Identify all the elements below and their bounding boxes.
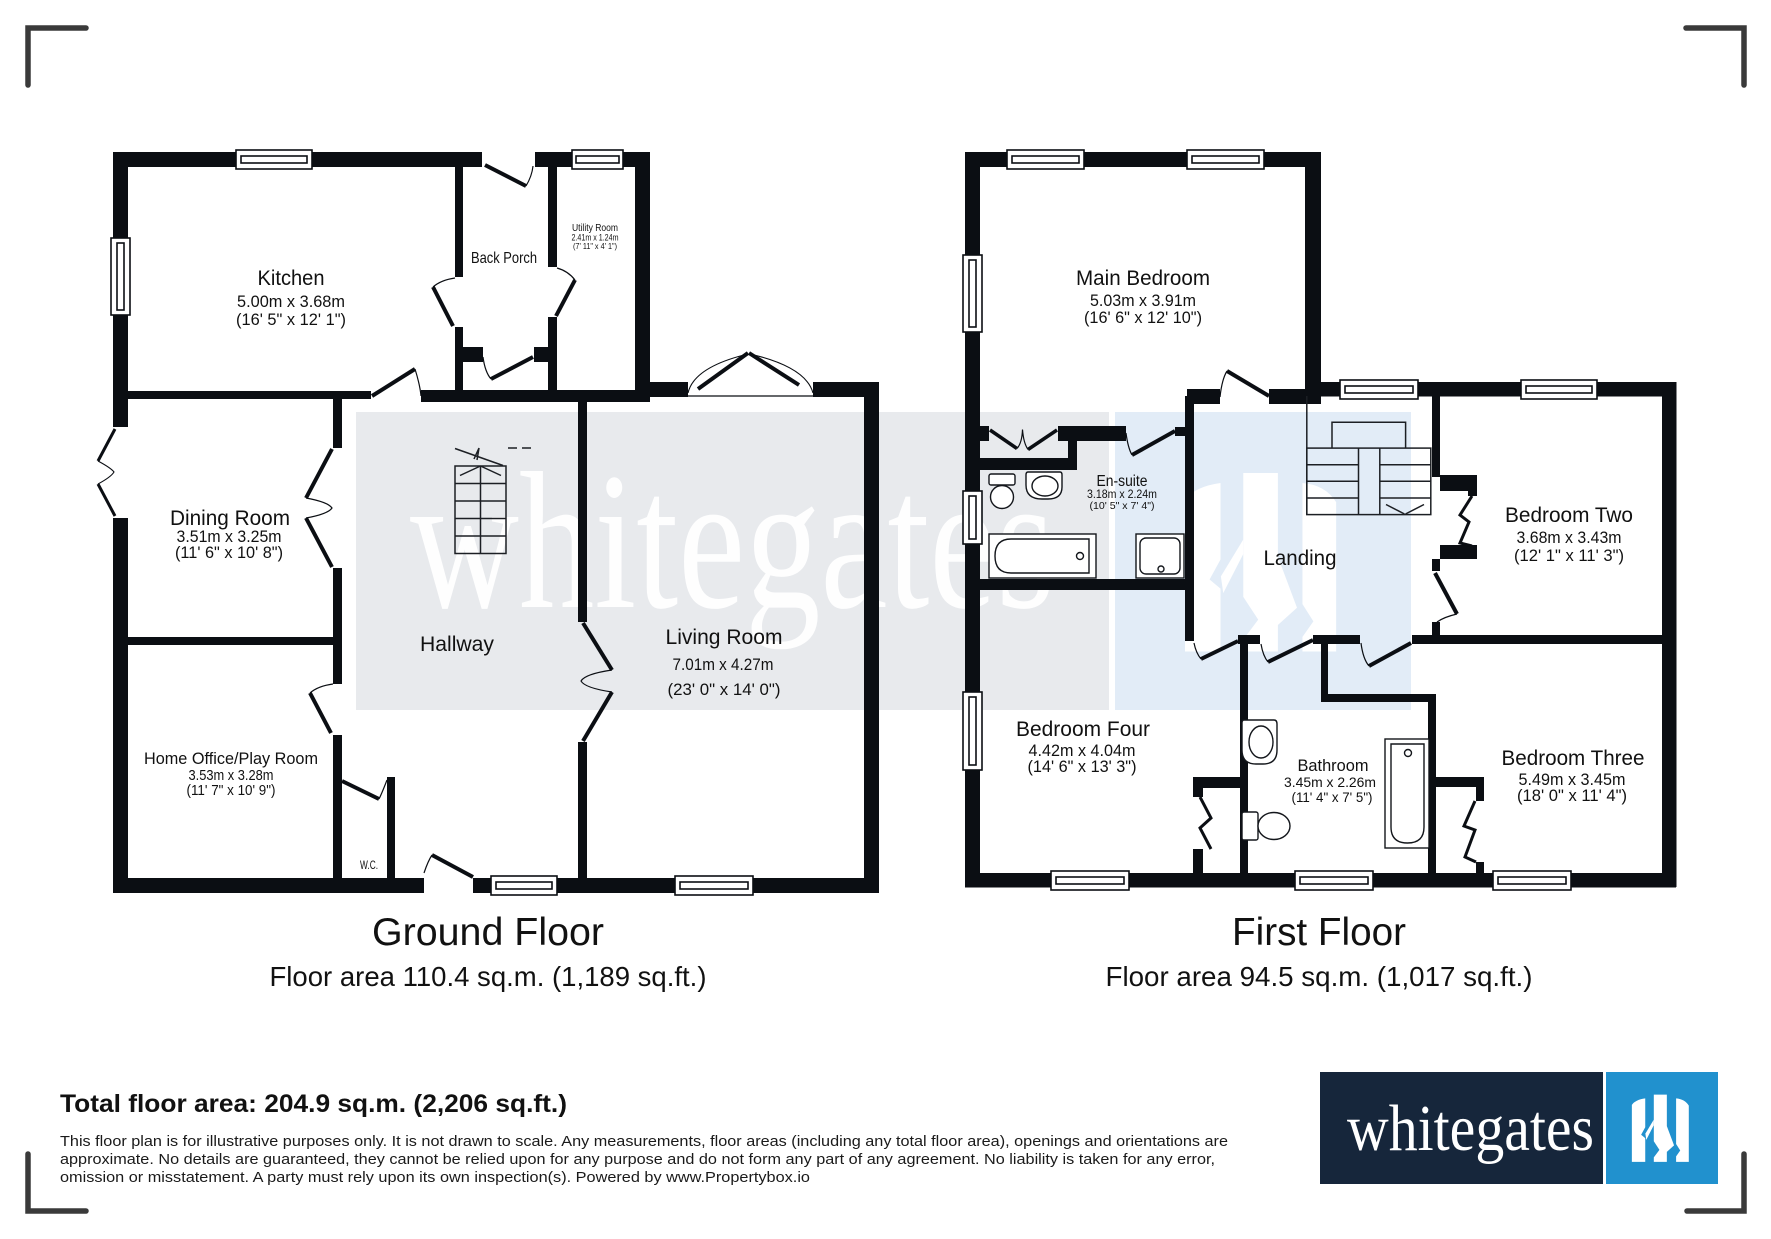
svg-text:Back Porch: Back Porch [471,250,537,267]
svg-text:(10' 5" x 7' 4"): (10' 5" x 7' 4") [1090,500,1155,512]
svg-text:Landing: Landing [1264,547,1337,570]
svg-text:(23' 0" x 14' 0"): (23' 0" x 14' 0") [668,680,781,699]
svg-text:(18' 0" x 11' 4"): (18' 0" x 11' 4") [1517,786,1627,805]
svg-text:Main Bedroom: Main Bedroom [1076,267,1210,290]
svg-text:En-suite: En-suite [1097,473,1148,490]
svg-text:5.00m x 3.68m: 5.00m x 3.68m [237,292,345,311]
svg-text:Bathroom: Bathroom [1298,757,1369,775]
svg-text:Living Room: Living Room [666,626,783,649]
svg-text:(12' 1" x 11' 3"): (12' 1" x 11' 3") [1514,546,1624,565]
svg-text:First Floor: First Floor [1232,911,1406,954]
svg-text:Floor area 110.4 sq.m. (1,189: Floor area 110.4 sq.m. (1,189 sq.ft.) [270,961,707,992]
svg-text:Bedroom Two: Bedroom Two [1505,504,1633,527]
svg-text:whitegates: whitegates [1347,1092,1594,1165]
svg-text:(16' 6" x 12' 10"): (16' 6" x 12' 10") [1084,308,1202,327]
svg-text:Bedroom Four: Bedroom Four [1016,718,1150,741]
svg-text:Ground Floor: Ground Floor [372,911,604,954]
svg-text:Hallway: Hallway [420,633,494,656]
svg-text:(14' 6" x 13' 3"): (14' 6" x 13' 3") [1028,757,1137,776]
svg-text:(7' 11" x 4' 1"): (7' 11" x 4' 1") [573,242,617,251]
svg-text:(16' 5" x 12' 1"): (16' 5" x 12' 1") [236,310,346,329]
svg-text:Floor area 94.5 sq.m. (1,017 s: Floor area 94.5 sq.m. (1,017 sq.ft.) [1106,961,1533,992]
svg-text:(11' 7" x 10' 9"): (11' 7" x 10' 9") [187,783,276,799]
svg-text:Total floor area: 204.9 sq.m.: Total floor area: 204.9 sq.m. (2,206 sq.… [60,1090,567,1118]
svg-text:Bedroom Three: Bedroom Three [1502,747,1645,770]
svg-text:2.41m x 1.24m: 2.41m x 1.24m [572,233,619,243]
svg-text:3.45m x 2.26m: 3.45m x 2.26m [1284,774,1376,790]
svg-text:3.68m x 3.43m: 3.68m x 3.43m [1517,528,1622,547]
svg-text:(11' 4" x 7' 5"): (11' 4" x 7' 5") [1292,789,1373,805]
svg-text:This floor plan is for illustr: This floor plan is for illustrative purp… [60,1134,1228,1150]
svg-text:Home Office/Play Room: Home Office/Play Room [144,750,318,768]
svg-text:7.01m x 4.27m: 7.01m x 4.27m [673,655,774,674]
svg-text:omission or misstatement. A pa: omission or misstatement. A party must r… [60,1170,810,1186]
svg-text:Kitchen: Kitchen [258,267,325,290]
svg-text:(11' 6" x 10' 8"): (11' 6" x 10' 8") [175,543,283,562]
svg-text:approximate. No details are gu: approximate. No details are guaranteed, … [60,1152,1215,1168]
svg-text:3.53m x 3.28m: 3.53m x 3.28m [189,768,274,784]
svg-text:W.C.: W.C. [360,858,378,872]
